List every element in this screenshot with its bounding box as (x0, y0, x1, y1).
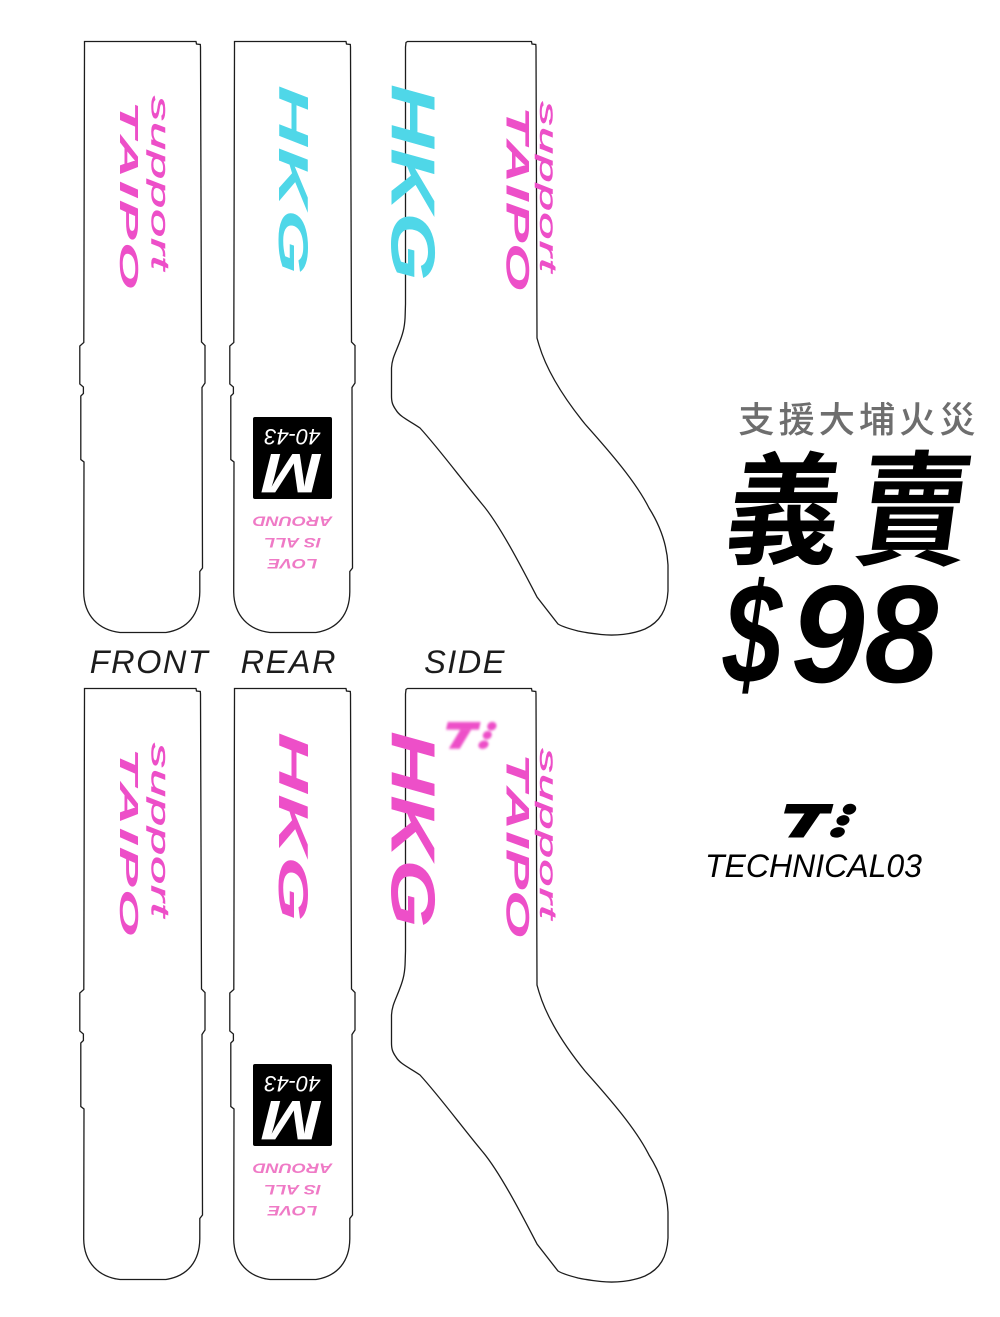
svg-text:support: support (146, 96, 174, 272)
svg-text:$: $ (722, 553, 783, 713)
svg-text:40-43: 40-43 (264, 424, 321, 449)
svg-text:REAR: REAR (241, 644, 337, 680)
svg-text:AROUND: AROUND (252, 513, 334, 528)
svg-text:AROUND: AROUND (252, 1160, 334, 1175)
svg-text:M: M (261, 442, 322, 505)
svg-text:FRONT: FRONT (90, 644, 210, 680)
svg-text:TAIPO: TAIPO (499, 753, 535, 938)
svg-text:HKG: HKG (378, 84, 447, 281)
svg-text:support: support (146, 743, 174, 919)
svg-text:HKG: HKG (270, 732, 317, 923)
svg-text:TAIPO: TAIPO (114, 748, 143, 938)
svg-text:98: 98 (791, 556, 939, 712)
svg-text:TAIPO: TAIPO (499, 106, 535, 291)
svg-text:IS ALL: IS ALL (264, 535, 321, 550)
svg-text:support: support (534, 749, 560, 921)
svg-text:TAIPO: TAIPO (114, 101, 143, 291)
svg-text:HKG: HKG (270, 85, 317, 276)
svg-text:HKG: HKG (378, 731, 447, 928)
svg-text:LOVE: LOVE (266, 556, 317, 571)
svg-text:LOVE: LOVE (266, 1203, 317, 1218)
svg-text:IS ALL: IS ALL (264, 1182, 321, 1197)
svg-text:40-43: 40-43 (264, 1071, 321, 1096)
svg-text:M: M (261, 1089, 322, 1152)
svg-text:support: support (534, 102, 560, 274)
svg-text:SIDE: SIDE (424, 644, 506, 680)
svg-text:TECHNICAL03: TECHNICAL03 (705, 848, 922, 884)
